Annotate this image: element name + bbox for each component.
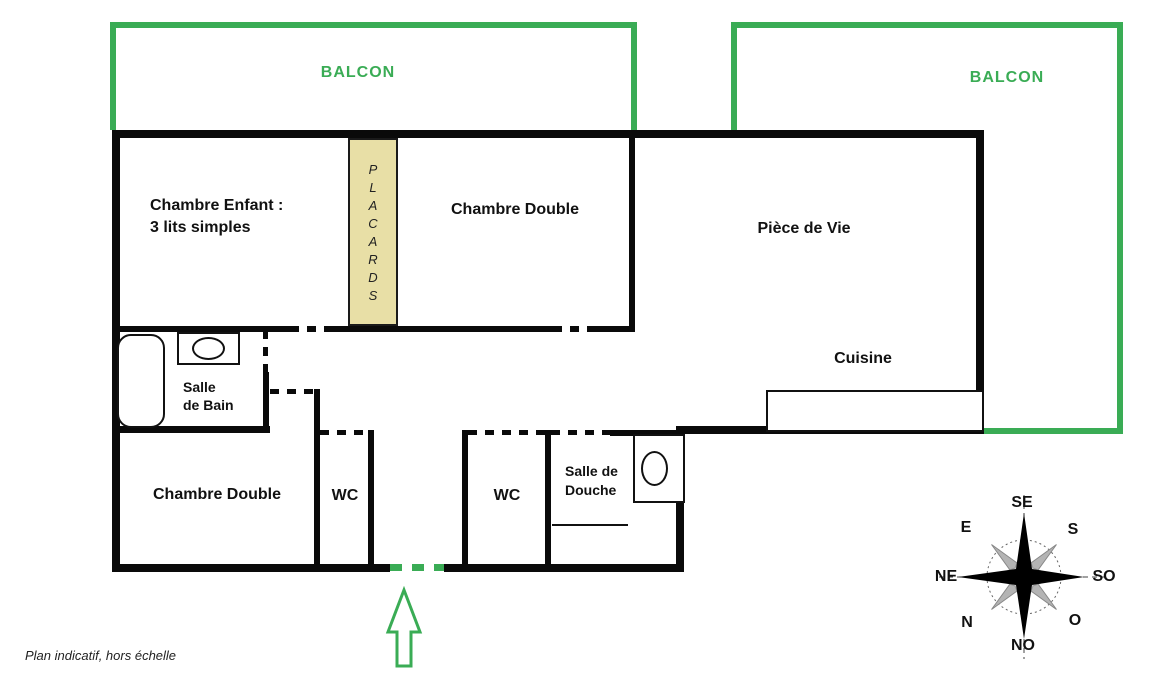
compass-label-no: NO (1011, 637, 1035, 655)
kitchen-counter (766, 390, 984, 432)
door-chambre-enfant (290, 326, 332, 332)
wall-sdb-right-solid (263, 372, 269, 432)
entrance-arrow-icon (380, 586, 430, 671)
placards-closet: P L A C A R D S (348, 138, 398, 326)
chambre-enfant-line2: 3 lits simples (150, 217, 283, 239)
compass-label-e: E (961, 519, 972, 537)
compass-label-ne: NE (935, 568, 957, 586)
wall-chambre-double-top-right (629, 130, 635, 332)
wall-wc-right-left (462, 430, 468, 568)
wall-outer-bottom-right (444, 564, 684, 572)
salle-de-bain-label: Salle de Bain (183, 378, 234, 414)
placard-letter: A (369, 234, 378, 249)
floor-plan: BALCON BALCON P L A C A R D S (0, 0, 1157, 690)
placard-letter: S (369, 288, 378, 303)
wall-outer-right (976, 130, 984, 434)
shower-divider-line (552, 524, 628, 526)
wall-hallway-vertical (314, 389, 320, 568)
placard-letter: L (369, 180, 376, 195)
cuisine-label: Cuisine (834, 350, 892, 368)
door-salle-de-douche (551, 430, 610, 435)
salle-de-douche-line2: Douche (565, 481, 618, 500)
compass-label-n: N (961, 614, 973, 632)
wc-left-label: WC (332, 487, 359, 505)
salle-de-bain-line1: Salle (183, 378, 234, 396)
door-salle-de-bain (263, 330, 268, 374)
placard-letter: D (368, 270, 377, 285)
door-wc-right (468, 430, 545, 435)
wc-right-label: WC (494, 487, 521, 505)
door-chambre-double-bottom (270, 389, 316, 394)
wall-outer-bottom-left (112, 564, 390, 572)
shower-sink-basin-icon (641, 451, 668, 486)
compass-label-s: S (1068, 521, 1079, 539)
door-chambre-double-top (553, 326, 593, 332)
balcony-right-bottom-edge (984, 428, 1123, 434)
balcony-right-top-edge (731, 22, 1123, 28)
wall-wc-left-right (368, 430, 374, 568)
bathroom-sink-basin-icon (192, 337, 225, 360)
plan-footnote: Plan indicatif, hors échelle (25, 648, 176, 663)
compass-label-so: SO (1092, 568, 1115, 586)
balcony-left-top-edge (110, 22, 637, 28)
balcony-right-right-edge (1117, 22, 1123, 434)
wall-outer-top (112, 130, 984, 138)
placard-letter: P (369, 162, 378, 177)
salle-de-douche-label: Salle de Douche (565, 462, 618, 500)
bathtub-icon (117, 334, 165, 428)
placard-letter: R (368, 252, 377, 267)
wall-enfant-bottom-2 (332, 326, 553, 332)
door-wc-left (320, 430, 368, 435)
balcony-left-right-edge (631, 22, 637, 130)
entrance-door (390, 564, 444, 571)
balcony-left-label: BALCON (321, 64, 395, 82)
salle-de-bain-line2: de Bain (183, 396, 234, 414)
balcony-left-left-edge (110, 22, 116, 130)
balcony-right-left-edge (731, 22, 737, 130)
chambre-double-top-label: Chambre Double (451, 201, 579, 219)
compass-label-se: SE (1011, 494, 1032, 512)
salle-de-douche-line1: Salle de (565, 462, 618, 481)
piece-de-vie-label: Pièce de Vie (757, 220, 850, 238)
wall-douche-left (545, 430, 551, 568)
compass-label-o: O (1069, 612, 1081, 630)
chambre-enfant-label: Chambre Enfant : 3 lits simples (150, 195, 283, 239)
balcony-right-label: BALCON (970, 69, 1044, 87)
chambre-double-bottom-label: Chambre Double (153, 486, 281, 504)
placard-letter: C (368, 216, 377, 231)
placard-letter: A (369, 198, 378, 213)
chambre-enfant-line1: Chambre Enfant : (150, 195, 283, 217)
